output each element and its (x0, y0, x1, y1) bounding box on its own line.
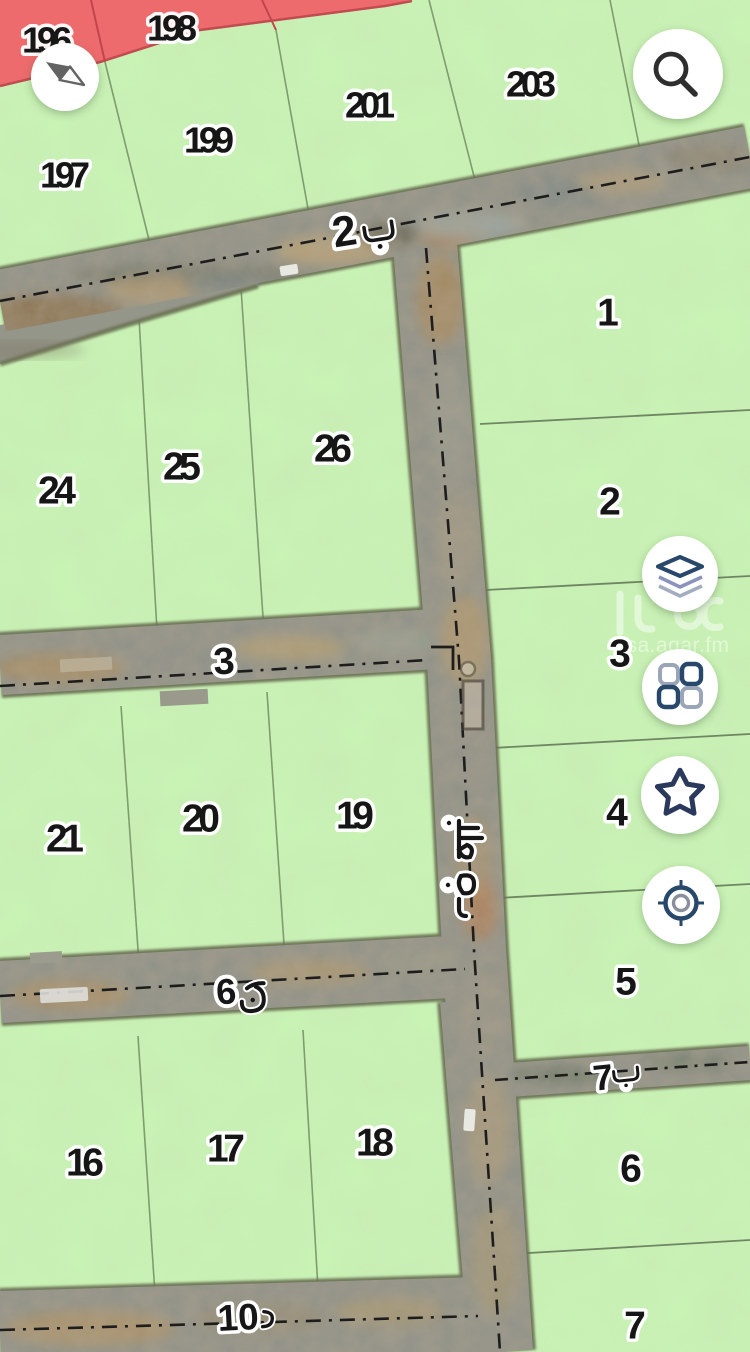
svg-text:16: 16 (66, 1142, 104, 1185)
svg-text:26: 26 (314, 428, 352, 471)
svg-text:203: 203 (506, 64, 556, 105)
svg-text:6: 6 (215, 970, 238, 1012)
svg-text:7: 7 (624, 1305, 646, 1348)
svg-text:19: 19 (336, 795, 374, 838)
svg-text:20: 20 (182, 798, 220, 841)
svg-text:1: 1 (597, 292, 619, 335)
svg-text:17: 17 (207, 1128, 245, 1171)
svg-text:3: 3 (212, 640, 235, 683)
svg-text:199: 199 (184, 120, 234, 161)
svg-text:2: 2 (599, 481, 621, 524)
svg-text:201: 201 (345, 85, 395, 126)
svg-text:4: 4 (606, 792, 628, 835)
svg-text:21: 21 (46, 818, 84, 861)
svg-text:7: 7 (591, 1056, 615, 1099)
svg-text:10: 10 (217, 1296, 260, 1339)
svg-text:6: 6 (620, 1148, 642, 1191)
svg-text:18: 18 (356, 1122, 394, 1165)
svg-text:197: 197 (40, 155, 90, 196)
svg-text:24: 24 (38, 470, 76, 513)
svg-text:25: 25 (163, 446, 201, 489)
svg-text:198: 198 (147, 8, 197, 49)
svg-text:5: 5 (615, 961, 637, 1004)
